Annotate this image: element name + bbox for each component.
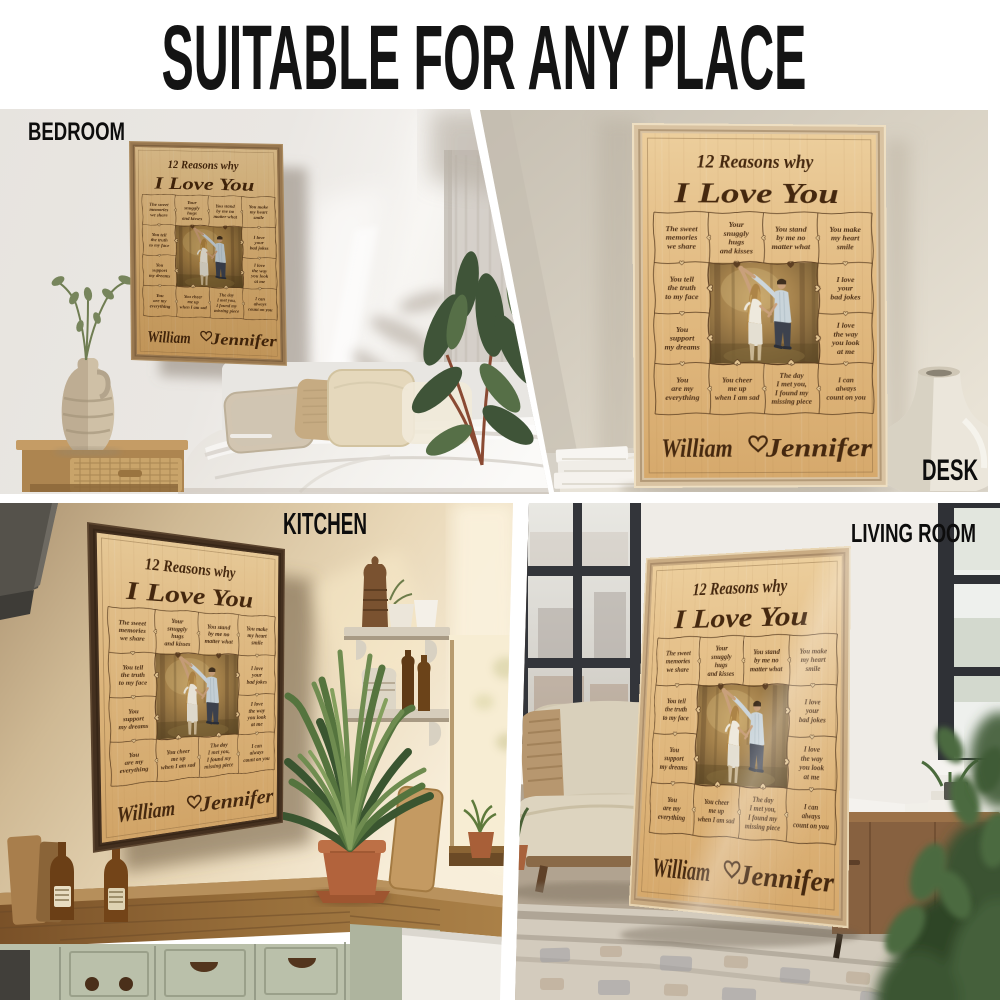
svg-text:DESK: DESK bbox=[922, 454, 978, 487]
svg-text:KITCHEN: KITCHEN bbox=[283, 506, 367, 541]
svg-text:BEDROOM: BEDROOM bbox=[28, 118, 125, 146]
svg-text:LIVING ROOM: LIVING ROOM bbox=[851, 518, 976, 548]
svg-text:SUITABLE FOR ANY PLACE: SUITABLE FOR ANY PLACE bbox=[162, 7, 807, 106]
